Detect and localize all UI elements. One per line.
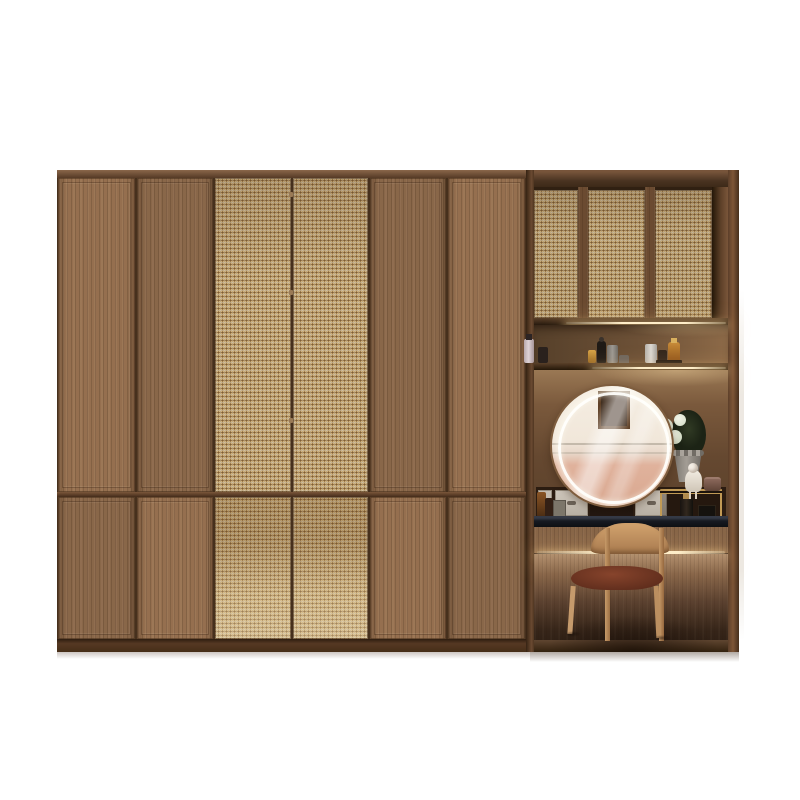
upper-cabinet-side-return [712,187,728,318]
wardrobe-door-3-lower-rattan[interactable] [215,497,291,639]
chair-front-leg [567,586,575,634]
wardrobe-door-4-rattan[interactable] [293,178,368,492]
wardrobe-door-2[interactable] [137,178,213,492]
black-bottle-cap [599,337,604,342]
wardrobe-door-4-lower-rattan[interactable] [293,497,368,639]
spray-bottle [524,339,534,363]
tower-right-frame [728,170,739,652]
chair [560,520,680,650]
amber-perfume-cap [671,338,677,343]
flower-bloom [674,414,686,426]
chair-backrest [591,523,669,554]
hat-box [704,477,721,491]
shelf-glow [600,325,728,341]
tower-top-rail [526,170,739,188]
gray-cylinder-bottle [607,345,618,363]
wardrobe-door-5[interactable] [370,178,446,492]
upper-cabinet-door-1[interactable] [534,190,578,318]
black-bottle [597,341,606,363]
mirror-led-ring [558,392,670,504]
upper-cabinet-stile [645,187,655,318]
vase-ruffle [672,450,704,456]
chair-seat [571,566,663,590]
vanity-mirror [550,384,674,508]
wardrobe-door-6[interactable] [448,178,525,492]
wardrobe-door-6-lower[interactable] [448,497,525,639]
upper-cabinet-stile [578,187,588,318]
spray-bottle-cap [526,334,532,340]
floor-shadow-right [530,652,739,662]
hinge-dot [289,418,293,423]
wardrobe-door-1[interactable] [58,178,135,492]
upper-cabinet-door-3[interactable] [655,190,712,318]
cream-jar [619,355,629,363]
doll-head [688,463,698,473]
scene [0,0,800,800]
led-strip-shelf-2 [592,367,726,369]
porcelain-doll [685,470,702,492]
chair-foot-shadow [562,630,584,638]
wardrobe-door-2-lower[interactable] [137,497,213,639]
tower-left-stile [526,170,534,652]
doll-leg [695,491,697,499]
led-strip-shelf-1 [566,322,726,324]
perfume-bottle-dark [538,347,548,363]
wardrobe-door-1-lower[interactable] [58,497,135,639]
wardrobe-door-5-lower[interactable] [370,497,446,639]
gold-flask [588,350,596,363]
plinth [57,639,530,652]
hinge-dot [289,290,293,295]
chair-foot-shadow [650,634,674,642]
wall-reflection [739,290,744,640]
doll-leg [689,491,691,499]
wardrobe-door-3-rattan[interactable] [215,178,291,492]
upper-cabinet-door-2[interactable] [588,190,645,318]
hinge-dot [289,192,293,197]
